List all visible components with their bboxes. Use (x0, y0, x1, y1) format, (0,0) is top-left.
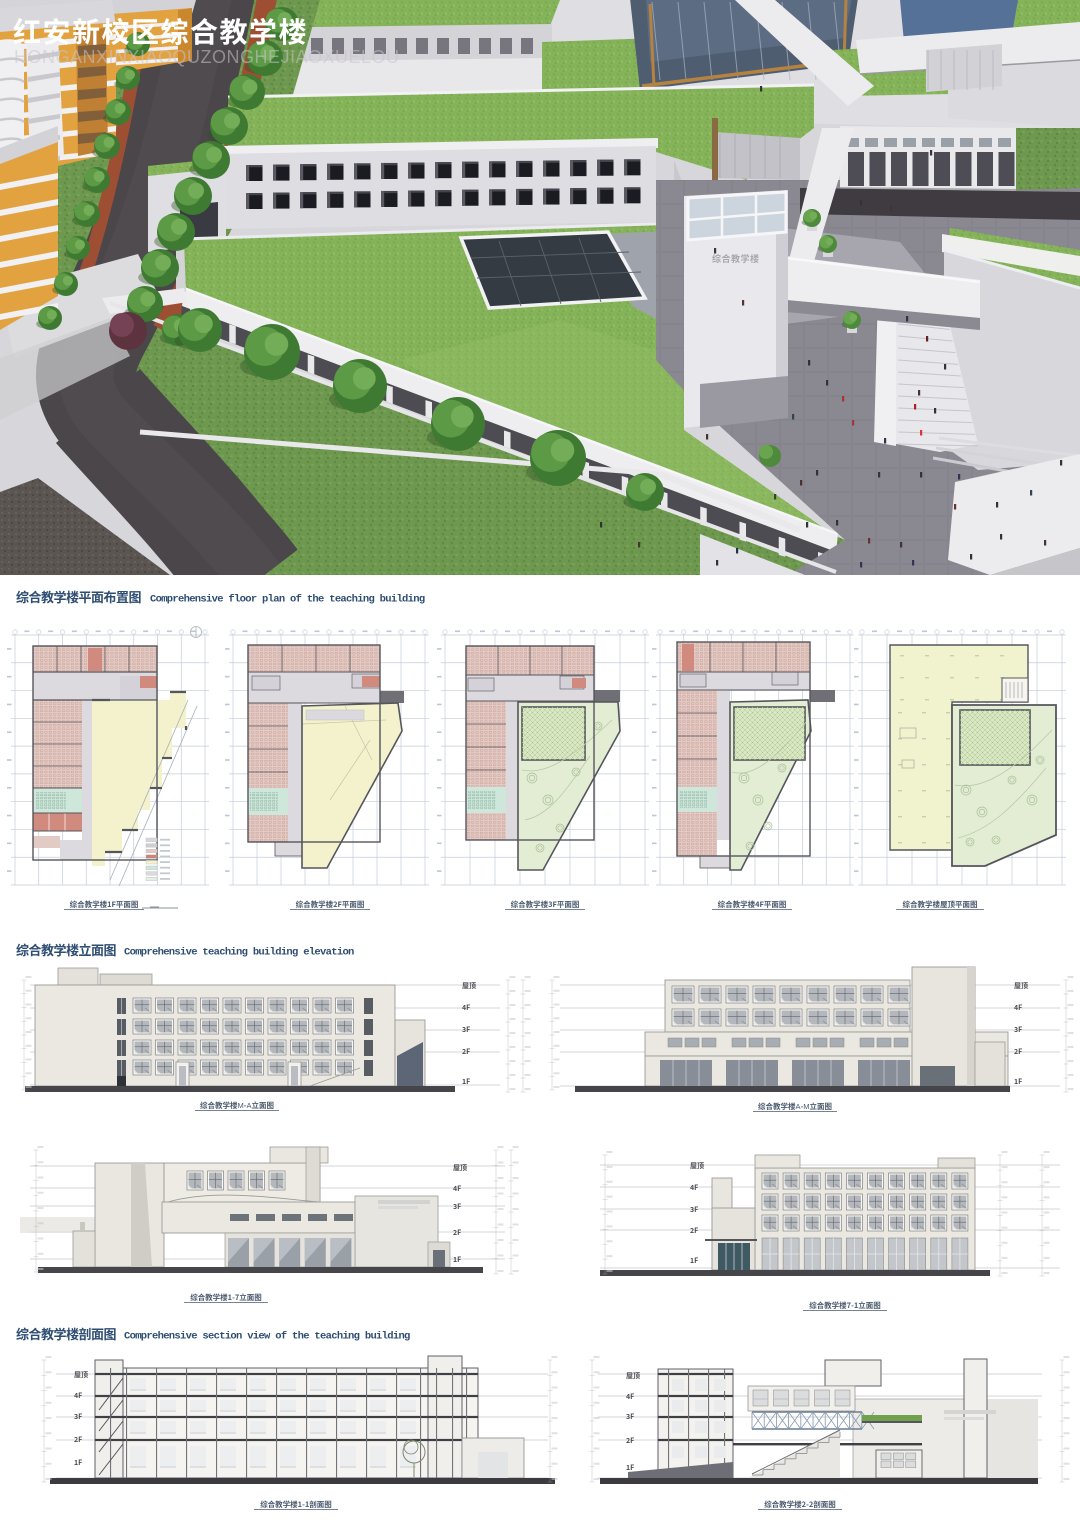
svg-text:综合教学楼M-A立面图: 综合教学楼M-A立面图 (200, 1100, 274, 1111)
svg-text:2F: 2F (626, 1436, 634, 1446)
svg-text:屋顶: 屋顶 (74, 1370, 88, 1380)
svg-text:屋顶: 屋顶 (690, 1161, 704, 1171)
svg-text:综合教学楼1-1剖面图: 综合教学楼1-1剖面图 (260, 1499, 332, 1510)
svg-text:HONGANXINXIAOQUZONGHEJIAOXUELO: HONGANXINXIAOQUZONGHEJIAOXUELOU (14, 43, 400, 69)
svg-text:2F: 2F (462, 1047, 470, 1057)
svg-text:4F: 4F (690, 1183, 698, 1193)
svg-text:3F: 3F (690, 1205, 698, 1215)
svg-text:3F: 3F (626, 1412, 634, 1422)
svg-text:3F: 3F (1014, 1025, 1022, 1035)
svg-text:Comprehensive floor plan of th: Comprehensive floor plan of the teaching… (150, 594, 425, 606)
svg-text:综合教学楼屋顶平面图: 综合教学楼屋顶平面图 (903, 899, 978, 910)
svg-text:屋顶: 屋顶 (1014, 981, 1028, 991)
svg-text:综合教学楼1-7立面图: 综合教学楼1-7立面图 (190, 1292, 262, 1303)
svg-text:屋顶: 屋顶 (453, 1163, 467, 1173)
svg-text:1F: 1F (453, 1255, 461, 1265)
svg-text:4F: 4F (453, 1184, 461, 1194)
svg-text:4F: 4F (74, 1391, 82, 1401)
svg-text:2F: 2F (453, 1228, 461, 1238)
svg-text:综合教学楼2F平面图: 综合教学楼2F平面图 (296, 899, 365, 910)
svg-text:2F: 2F (1014, 1047, 1022, 1057)
svg-text:综合教学楼3F平面图: 综合教学楼3F平面图 (511, 899, 580, 910)
svg-text:屋顶: 屋顶 (626, 1371, 640, 1381)
svg-text:Comprehensive section view of: Comprehensive section view of the teachi… (124, 1331, 410, 1343)
svg-text:综合教学楼7-1立面图: 综合教学楼7-1立面图 (809, 1300, 881, 1311)
svg-text:2F: 2F (690, 1226, 698, 1236)
svg-text:3F: 3F (453, 1202, 461, 1212)
svg-text:3F: 3F (74, 1412, 82, 1422)
svg-text:综合教学楼A-M立面图: 综合教学楼A-M立面图 (758, 1101, 832, 1112)
svg-text:4F: 4F (1014, 1003, 1022, 1013)
svg-text:1F: 1F (690, 1256, 698, 1266)
svg-text:屋顶: 屋顶 (462, 981, 476, 991)
svg-text:综合教学楼剖面图: 综合教学楼剖面图 (16, 1324, 117, 1343)
svg-text:1F: 1F (462, 1077, 470, 1087)
svg-text:3F: 3F (462, 1025, 470, 1035)
svg-text:1F: 1F (74, 1458, 82, 1468)
svg-text:综合教学楼4F平面图: 综合教学楼4F平面图 (718, 899, 787, 910)
svg-text:1F: 1F (626, 1463, 634, 1473)
svg-text:Comprehensive teaching buildin: Comprehensive teaching building elevatio… (124, 947, 354, 959)
svg-text:综合教学楼平面布置图: 综合教学楼平面布置图 (16, 587, 142, 606)
svg-text:4F: 4F (626, 1392, 634, 1402)
svg-text:综合教学楼2-2剖面图: 综合教学楼2-2剖面图 (764, 1499, 836, 1510)
svg-text:4F: 4F (462, 1003, 470, 1013)
svg-text:综合教学楼1F平面图: 综合教学楼1F平面图 (70, 899, 139, 910)
svg-text:综合教学楼立面图: 综合教学楼立面图 (16, 940, 117, 959)
svg-text:1F: 1F (1014, 1077, 1022, 1087)
svg-text:2F: 2F (74, 1435, 82, 1445)
svg-text:综合教学楼: 综合教学楼 (712, 252, 760, 265)
